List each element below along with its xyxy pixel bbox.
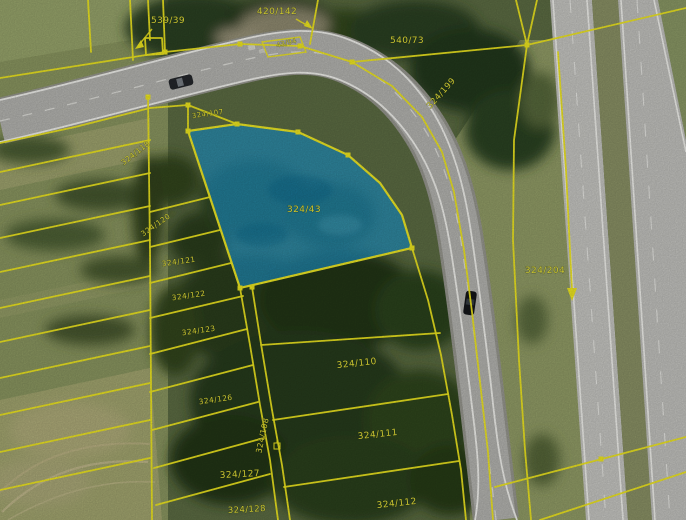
map-viewport[interactable]: 539/39420/14243/94540/73324/199324/10732… xyxy=(0,0,686,520)
photo-grain xyxy=(0,0,686,520)
